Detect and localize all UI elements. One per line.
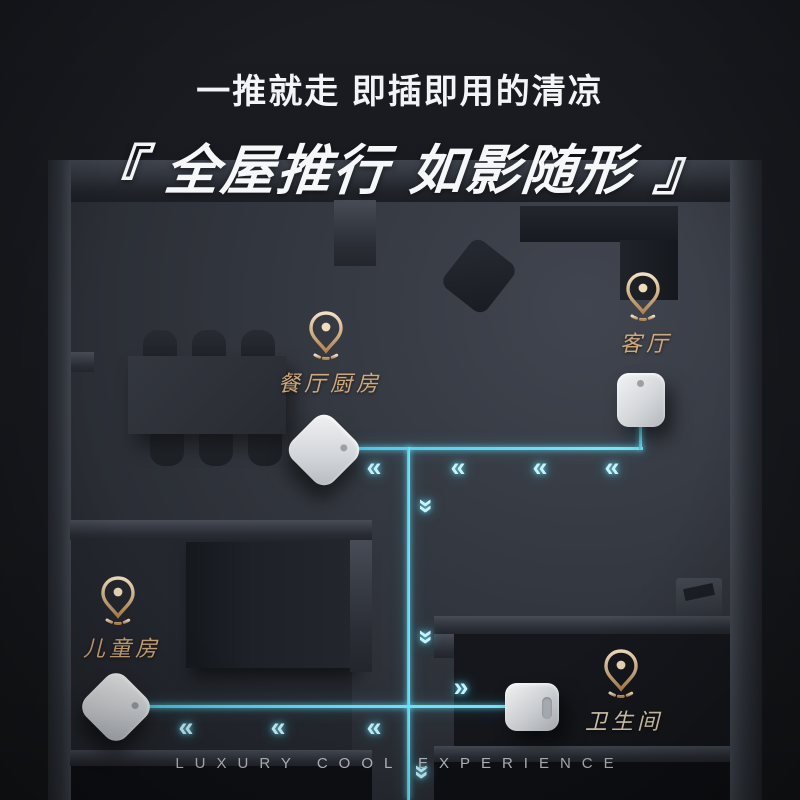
path-line-bottom [142, 705, 510, 708]
chevron-down-icon: » [415, 624, 439, 650]
chevron-down-icon: » [415, 493, 439, 519]
poster-subtitle: 一推就走 即插即用的清凉 [0, 64, 800, 113]
chevron-right-icon: » [448, 675, 474, 699]
wall-kitchen-divider [334, 200, 376, 266]
location-pin-icon [623, 270, 663, 324]
poster-title: 『 全屋推行 如影随形 』 [0, 126, 800, 205]
dining-table [128, 356, 286, 434]
location-pin-icon [306, 309, 346, 363]
room-label-bathroom: 卫生间 [585, 704, 663, 736]
chevron-left-icon: « [361, 455, 387, 479]
wall-left [48, 160, 71, 800]
wall-kids-top [70, 520, 372, 540]
wall-kids-right [350, 540, 372, 672]
chevron-left-icon: « [173, 715, 199, 739]
room-label-dining-kitchen: 餐厅厨房 [278, 366, 382, 398]
sofa [520, 206, 678, 242]
ac-device-bathroom [505, 683, 559, 731]
chevron-left-icon: « [361, 715, 387, 739]
location-pin-icon [98, 574, 138, 628]
ac-device-living [617, 373, 665, 427]
kids-bed [186, 542, 352, 668]
location-pin-icon [601, 647, 641, 701]
room-label-living: 客厅 [620, 326, 672, 358]
chevron-left-icon: « [265, 715, 291, 739]
chevron-left-icon: « [599, 455, 625, 479]
chevron-left-icon: « [445, 455, 471, 479]
path-line-vertical [407, 447, 410, 800]
room-label-kids: 儿童房 [83, 631, 161, 663]
washer [676, 578, 722, 618]
wall-bath-top [434, 616, 730, 634]
path-line-top [350, 447, 643, 450]
wall-stub [71, 352, 94, 372]
poster-caption: LUXURY COOL EXPERIENCE [0, 755, 800, 772]
poster-canvas: 一推就走 即插即用的清凉 『 全屋推行 如影随形 』 « « « « » » »… [0, 0, 800, 800]
chevron-left-icon: « [527, 455, 553, 479]
wall-right [730, 160, 762, 800]
